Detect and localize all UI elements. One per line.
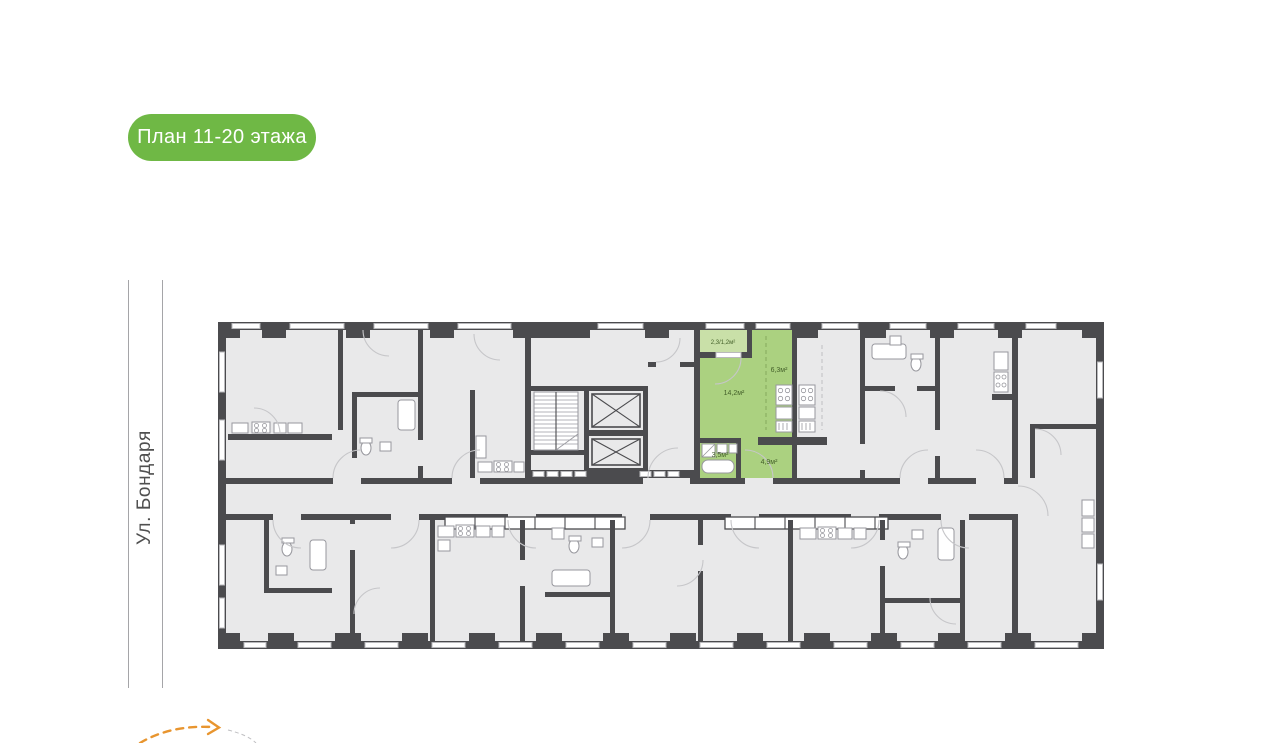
elevator-shaft-2 [592, 439, 640, 465]
highlighted-apartment[interactable]: 2,3/1,2м² 14,2м² 6,3м² 3,5м² 4,9м² [694, 330, 797, 478]
bathroom-area-label: 3,5м² [712, 452, 730, 459]
staircase [534, 392, 578, 450]
elevator-shafts [584, 386, 648, 474]
living-room-area-label: 14,2м² [724, 390, 745, 397]
street-direction-arrow [140, 720, 256, 743]
floor-plan: 2,3/1,2м² 14,2м² 6,3м² 3,5м² 4,9м² [0, 0, 1280, 743]
hallway-area-label: 4,9м² [761, 459, 779, 466]
balcony-area-label: 2,3/1,2м² [711, 340, 735, 346]
street-guide-lines [129, 280, 163, 688]
kitchen-area-label: 6,3м² [771, 367, 789, 374]
page: План 11-20 этажа Ул. Бондаря [0, 0, 1280, 743]
elevator-shaft-1 [592, 394, 640, 427]
